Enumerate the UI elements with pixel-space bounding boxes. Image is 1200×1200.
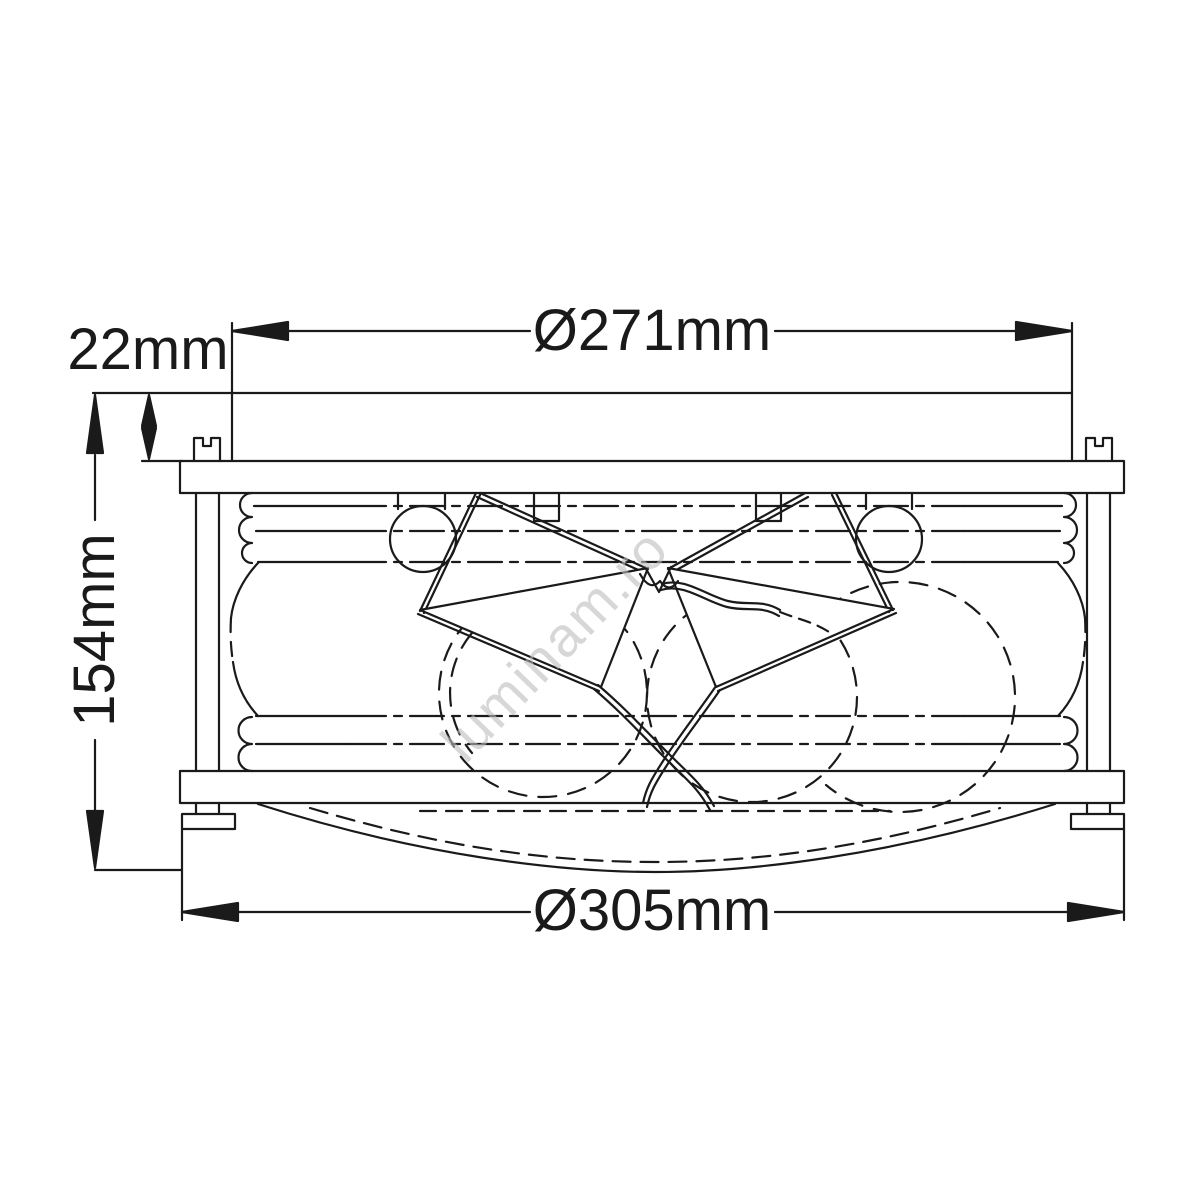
upper-ring (180, 461, 1124, 493)
dim-label-bottom-diameter: Ø305mm (452, 880, 852, 942)
technical-drawing-page: luminam.ro Ø271mm 22mm 154mm Ø305mm (0, 0, 1200, 1200)
glass-wall-left (231, 493, 258, 771)
dim-canopy-height (142, 395, 182, 461)
dim-label-top-diameter: Ø271mm (452, 300, 852, 362)
dim-label-canopy-height: 22mm (0, 319, 296, 381)
dim-label-body-height: 154mm (64, 480, 126, 780)
socket-box-right (668, 568, 896, 691)
lower-ring (180, 771, 1124, 803)
glass-wall-right (1058, 493, 1085, 771)
